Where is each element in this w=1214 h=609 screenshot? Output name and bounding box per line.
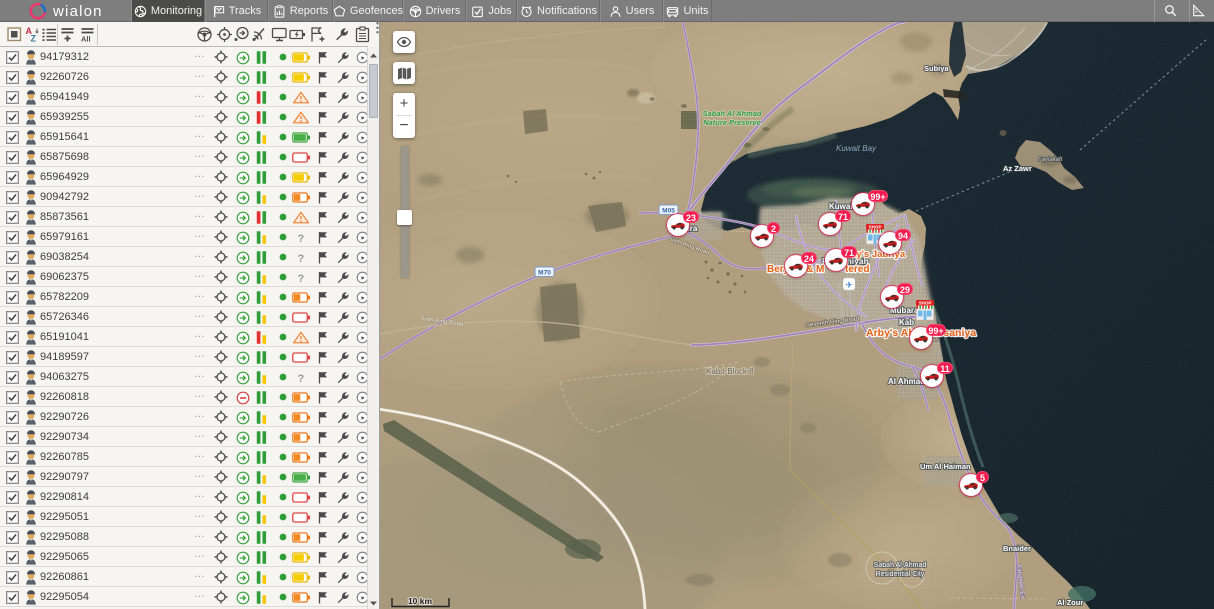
svg-text:?: ?: [298, 233, 305, 244]
svg-text:Al Zour: Al Zour: [1057, 598, 1083, 607]
svg-text:Z: Z: [31, 34, 37, 44]
svg-text:10 km: 10 km: [408, 596, 433, 606]
svg-text:Subiya: Subiya: [924, 64, 949, 73]
svg-text:?: ?: [298, 373, 305, 384]
svg-text:& M: & M: [806, 264, 824, 275]
svg-text:Bnaider: Bnaider: [1003, 544, 1031, 553]
svg-text:Kuwait Bay: Kuwait Bay: [836, 144, 877, 153]
svg-text:✈: ✈: [845, 280, 853, 290]
svg-text:SHOP: SHOP: [869, 224, 882, 229]
svg-text:Um Al Haiman: Um Al Haiman: [920, 462, 971, 471]
svg-text:Sabah Al Ahmad: Sabah Al Ahmad: [702, 109, 761, 118]
svg-text:Az Zawr: Az Zawr: [1003, 164, 1032, 173]
svg-text:Faylakah: Faylakah: [1038, 157, 1063, 163]
svg-text:M05: M05: [662, 207, 675, 214]
svg-text:Nature Preserve: Nature Preserve: [703, 118, 761, 127]
svg-text:SHOP: SHOP: [919, 300, 932, 305]
svg-text:Residential City: Residential City: [876, 571, 925, 578]
svg-text:Sabah Al-Ahmad: Sabah Al-Ahmad: [874, 562, 927, 569]
svg-text:M70: M70: [538, 269, 551, 276]
svg-text:?: ?: [298, 273, 305, 284]
svg-text:tered: tered: [845, 264, 869, 275]
svg-text:Kab: Kab: [899, 318, 914, 327]
svg-text:All: All: [81, 35, 91, 44]
svg-text:?: ?: [298, 253, 305, 264]
svg-text:Kabd-Block 8: Kabd-Block 8: [706, 367, 754, 376]
